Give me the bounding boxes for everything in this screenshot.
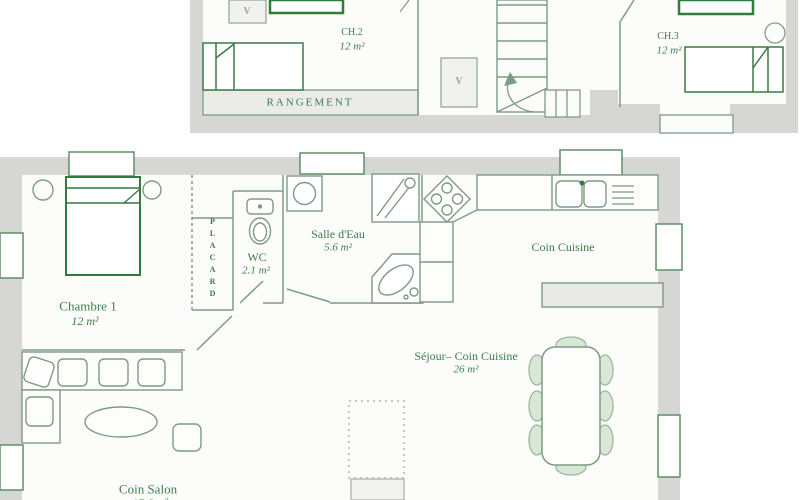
bed-ch3 xyxy=(685,47,783,92)
staircase xyxy=(497,0,547,112)
label-wc-name: WC xyxy=(247,251,266,263)
label-sejour-name: Séjour– Coin Cuisine xyxy=(414,350,517,362)
bedside-lamp-ch3 xyxy=(765,23,785,43)
window-left-2 xyxy=(0,445,23,490)
upper-floor-plan xyxy=(190,0,798,133)
label-wc-area: 2.1 m² xyxy=(242,266,270,277)
window-chambre1 xyxy=(69,152,134,176)
dormer-window xyxy=(660,115,733,133)
label-sejour-area: 26 m² xyxy=(454,365,479,376)
label-placard: PLACARD xyxy=(208,217,216,301)
window-salle-eau xyxy=(300,153,364,174)
armchair xyxy=(173,424,201,451)
wall-segment xyxy=(590,90,618,115)
label-salle-eau-name: Salle d'Eau xyxy=(311,228,365,240)
label-ch3-name: CH.3 xyxy=(657,32,678,42)
wall-segment xyxy=(618,104,660,115)
closet-next-to-stairs xyxy=(545,90,580,117)
window-ch3 xyxy=(679,0,753,14)
floor-plan-drawing xyxy=(0,0,800,500)
window-right-2 xyxy=(658,415,680,477)
window-ch2 xyxy=(270,0,343,13)
stairs-base xyxy=(351,479,404,500)
velux-mark-2: V xyxy=(455,77,462,87)
window-left-1 xyxy=(0,233,23,278)
bed-ch2 xyxy=(203,43,303,90)
shower xyxy=(372,174,419,222)
label-ch3-area: 12 m² xyxy=(657,46,682,57)
sink-double xyxy=(556,181,606,208)
bed-double-chambre1 xyxy=(66,177,140,275)
bedside-table-left xyxy=(33,180,53,200)
label-salle-eau-area: 5.6 m² xyxy=(324,243,352,254)
washbasin xyxy=(287,176,322,211)
coffee-table xyxy=(85,407,157,437)
label-ch2-name: CH.2 xyxy=(341,28,362,38)
label-ch2-area: 12 m² xyxy=(340,42,365,53)
bedside-table-right xyxy=(143,181,161,199)
window-cuisine xyxy=(560,150,622,175)
label-coin-cuisine: Coin Cuisine xyxy=(531,241,594,253)
label-coin-salon-name: Coin Salon xyxy=(119,483,177,496)
floor-plan-page: CH.2 12 m² CH.3 12 m² RANGEMENT V V Cham… xyxy=(0,0,800,500)
bar-counter xyxy=(542,283,663,307)
velux-mark-1: V xyxy=(243,7,250,17)
ground-floor-plan xyxy=(0,150,682,500)
label-chambre1-area: 12 m² xyxy=(71,315,98,327)
wall-segment xyxy=(730,104,788,115)
label-chambre1-name: Chambre 1 xyxy=(59,300,116,313)
window-right-1 xyxy=(656,224,682,270)
label-rangement: RANGEMENT xyxy=(266,98,353,109)
dining-table xyxy=(542,347,600,465)
